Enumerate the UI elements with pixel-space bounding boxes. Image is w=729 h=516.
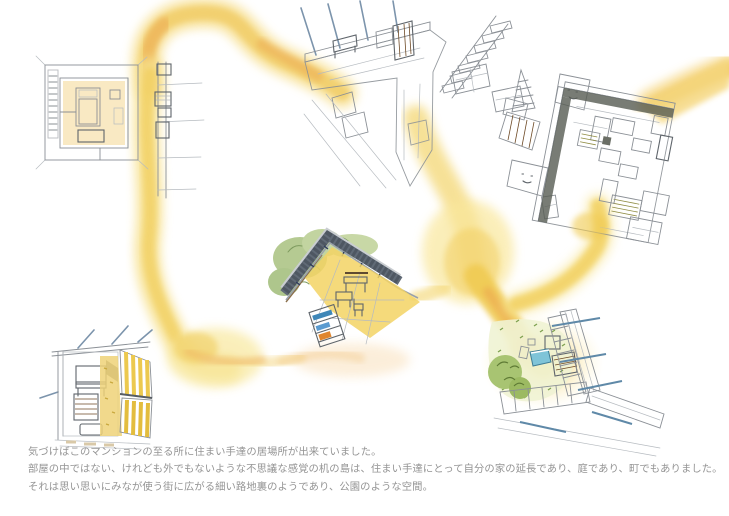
alley-path-network (146, 13, 729, 410)
blue-tub (376, 28, 393, 48)
pink-tub (80, 424, 102, 435)
vignette-room-plan-top-left (36, 56, 204, 198)
table-outline (626, 217, 662, 245)
desk-blue (631, 138, 651, 153)
illustration-page: 気づけばこのマンションの至る所に住まい手達の居場所が出来ていました。 部屋の中で… (0, 0, 729, 516)
stored-box-green (158, 108, 171, 117)
caption-line-2: 部屋の中ではない、けれども外でもないような不思議な感覚の机の島は、住まい手達にと… (28, 461, 728, 478)
vignette-room-top-right (499, 58, 729, 245)
caption-line-3: それは思い思いにみなが使う街に広がる細い路地裏のようであり、公園のような空間。 (28, 479, 728, 496)
caption-block: 気づけばこのマンションの至る所に住まい手達の居場所が出来ていました。 部屋の中で… (28, 444, 728, 496)
vignette-room-bottom-left (40, 326, 152, 449)
desk-blue (611, 118, 635, 136)
table-outline (640, 191, 669, 216)
ladder-shelf (48, 70, 58, 138)
stairs (440, 16, 512, 98)
bush (509, 377, 531, 399)
vignette-balcony-center (268, 229, 420, 347)
louver-shelf (74, 394, 98, 420)
pink-floor-panel (342, 112, 368, 138)
caption-line-1: 気づけばこのマンションの至る所に住まい手達の居場所が出来ていました。 (28, 444, 728, 461)
illustration-canvas (0, 0, 729, 516)
pink-flag (507, 160, 548, 196)
green-wedge (503, 98, 528, 120)
floor-strip (100, 356, 122, 436)
desk-blue (599, 148, 621, 165)
